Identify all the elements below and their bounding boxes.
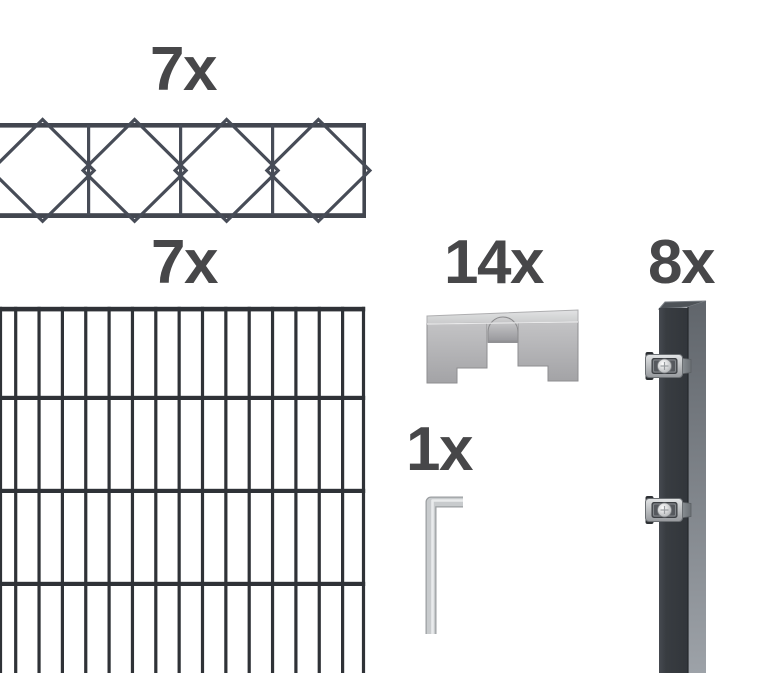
clamp-dome-shadow (488, 341, 518, 344)
allen-key-body (431, 501, 463, 635)
clamp-left-block (427, 323, 487, 383)
topper-divider (271, 125, 274, 215)
topper-diamond (267, 120, 370, 222)
topper-wire-group (0, 120, 370, 222)
topper-diamond (175, 120, 278, 222)
decorative-cross-topper-icon (0, 117, 374, 227)
clamp-right-block (518, 322, 578, 381)
mesh-horizontal-wire (0, 307, 365, 312)
cover-rail-clamp-icon (426, 308, 582, 390)
double-rod-mesh-panel-icon (0, 303, 370, 673)
clamp-dome-tab (488, 317, 518, 342)
fence-post-icon (638, 296, 708, 673)
product-kit-image: 7x 7x 14x 1x 8x (0, 0, 769, 673)
panel-count-label: 7x (151, 232, 217, 294)
topper-divider (179, 125, 182, 215)
post-count-label: 8x (648, 232, 714, 294)
post-side-face (688, 301, 706, 673)
topper-count-label: 7x (150, 39, 216, 101)
mesh-horizontal-wire (0, 489, 365, 493)
mesh-wire-group (0, 307, 365, 673)
topper-divider (87, 125, 90, 215)
topper-diamond (0, 120, 94, 222)
mesh-horizontal-wire (0, 396, 365, 400)
topper-diamond (83, 120, 186, 222)
clamp-count-label: 14x (444, 232, 543, 294)
allen-key-count-label: 1x (406, 419, 472, 481)
allen-key-icon (412, 488, 476, 644)
mesh-horizontal-wire (0, 582, 365, 586)
topper-right-edge (362, 123, 366, 218)
